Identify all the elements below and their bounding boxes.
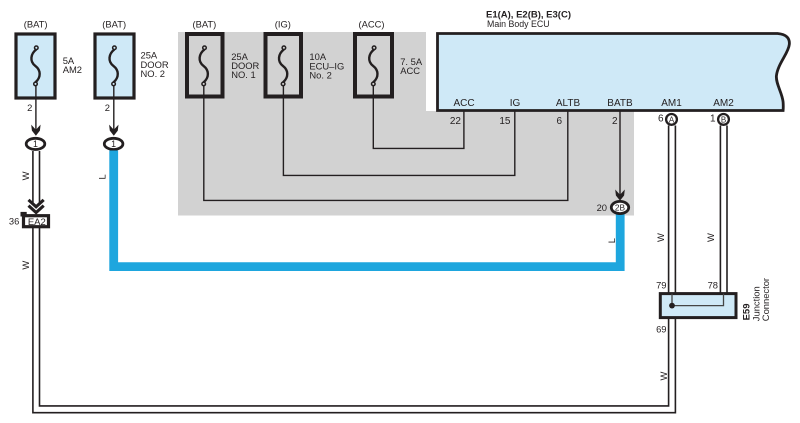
svg-text:1: 1 (111, 139, 116, 149)
svg-text:1: 1 (33, 139, 38, 149)
svg-text:Main Body ECU: Main Body ECU (487, 19, 550, 29)
svg-text:EA2: EA2 (28, 217, 46, 228)
svg-text:(BAT): (BAT) (193, 19, 217, 30)
svg-text:B: B (721, 115, 726, 124)
svg-text:No. 2: No. 2 (309, 70, 331, 81)
svg-text:22: 22 (450, 116, 462, 127)
svg-text:2: 2 (27, 102, 32, 113)
svg-text:W: W (655, 233, 666, 242)
svg-text:A: A (669, 115, 675, 124)
svg-text:(BAT): (BAT) (102, 19, 126, 30)
svg-text:(BAT): (BAT) (24, 19, 48, 30)
svg-text:L: L (606, 238, 617, 243)
svg-text:(IG): (IG) (275, 19, 291, 30)
svg-text:6: 6 (556, 116, 562, 127)
svg-text:6: 6 (658, 114, 664, 125)
svg-text:W: W (658, 372, 669, 381)
svg-text:AM2: AM2 (713, 98, 734, 109)
svg-text:W: W (20, 171, 31, 180)
svg-text:NO. 1: NO. 1 (231, 69, 256, 80)
svg-text:ACC: ACC (400, 65, 420, 76)
svg-text:W: W (20, 261, 31, 270)
svg-text:Connector: Connector (760, 278, 771, 321)
svg-text:15: 15 (499, 116, 511, 127)
svg-text:AM2: AM2 (63, 64, 82, 75)
svg-text:1: 1 (710, 114, 716, 125)
svg-text:(ACC): (ACC) (358, 19, 384, 30)
svg-text:ALTB: ALTB (556, 98, 581, 109)
svg-text:79: 79 (656, 279, 666, 290)
svg-text:L: L (96, 174, 107, 179)
svg-text:78: 78 (708, 279, 718, 290)
svg-text:2: 2 (105, 102, 110, 113)
svg-text:AM1: AM1 (661, 98, 682, 109)
svg-text:20: 20 (597, 202, 607, 213)
svg-text:BATB: BATB (607, 98, 633, 109)
svg-text:W: W (705, 233, 716, 242)
svg-text:IG: IG (510, 98, 521, 109)
svg-text:69: 69 (656, 323, 666, 334)
svg-text:2: 2 (612, 116, 618, 127)
svg-text:36: 36 (9, 215, 19, 226)
svg-text:ACC: ACC (453, 98, 474, 109)
svg-text:2B: 2B (615, 203, 626, 213)
svg-text:NO. 2: NO. 2 (141, 68, 166, 79)
